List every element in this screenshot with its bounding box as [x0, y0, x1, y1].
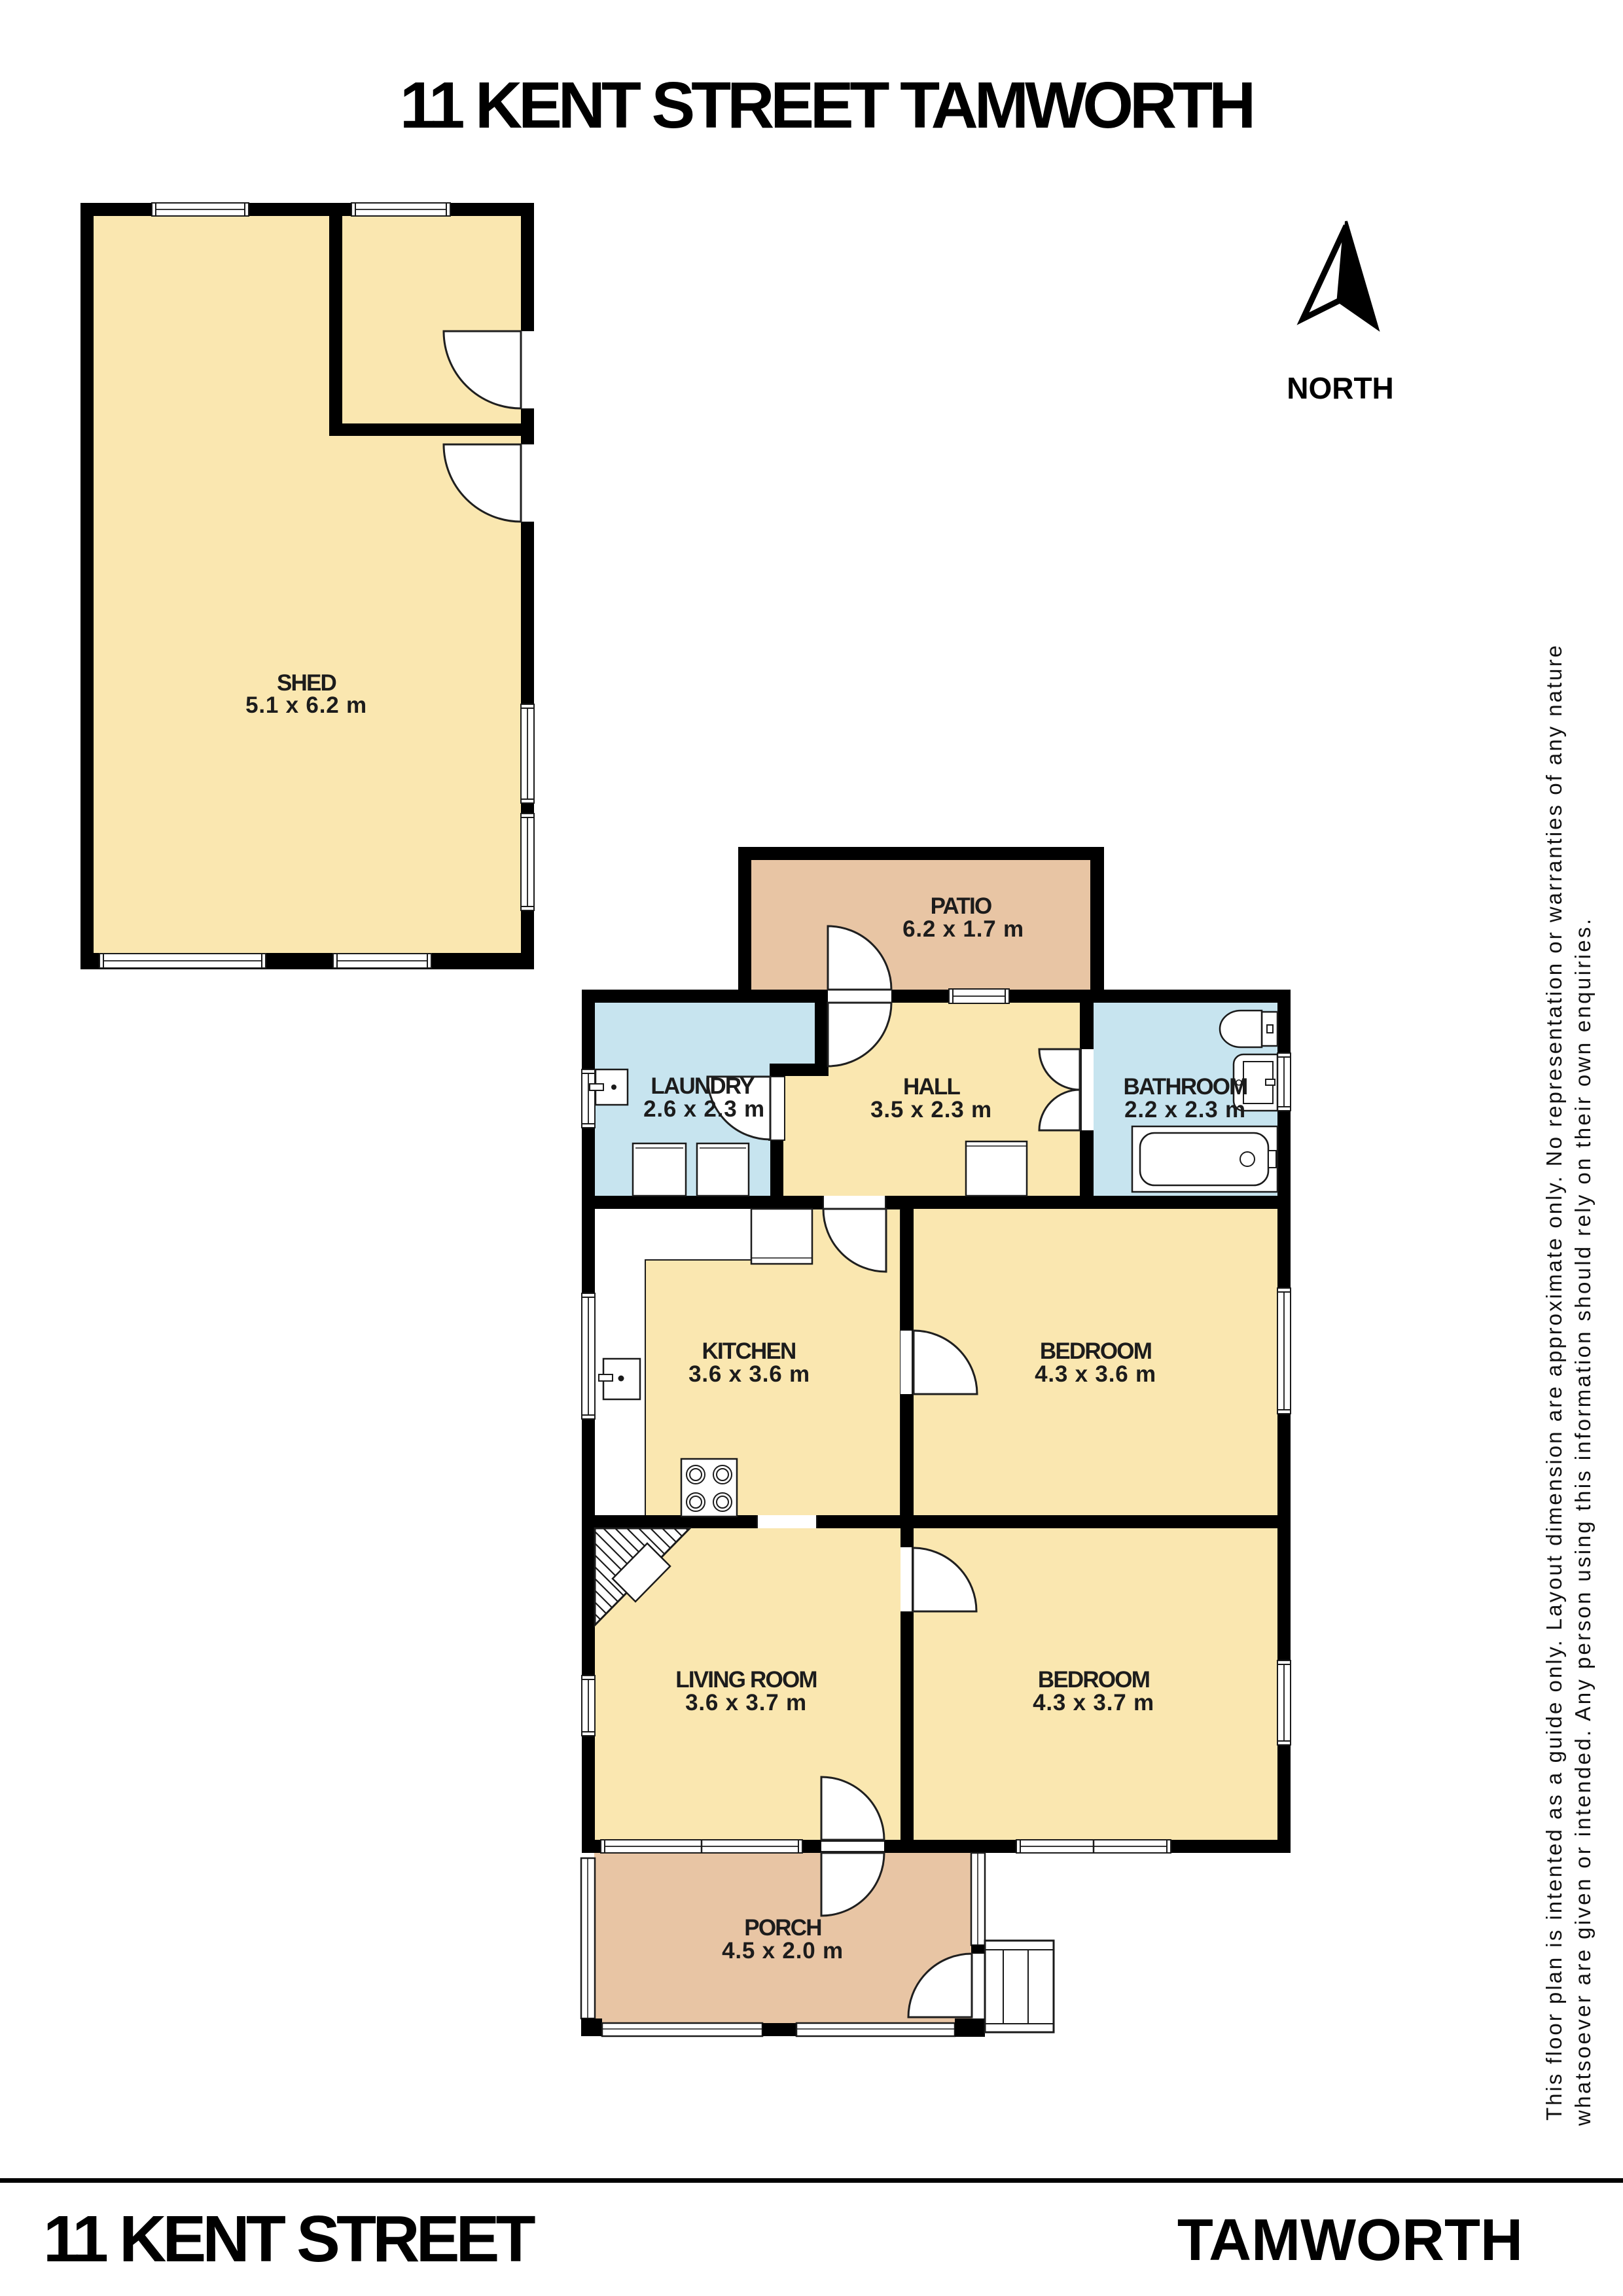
svg-text:3.5 x 2.3 m: 3.5 x 2.3 m: [870, 1097, 992, 1122]
svg-text:NORTH: NORTH: [1287, 371, 1394, 405]
svg-text:BATHROOM: BATHROOM: [1123, 1074, 1247, 1100]
svg-text:2.6 x 2.3 m: 2.6 x 2.3 m: [643, 1096, 765, 1122]
svg-text:PATIO: PATIO: [931, 893, 991, 919]
svg-text:This floor plan is intented as: This floor plan is intented as a guide o…: [1542, 643, 1566, 2121]
svg-text:11 KENT STREET TAMWORTH: 11 KENT STREET TAMWORTH: [400, 69, 1252, 142]
svg-text:2.2 x 2.3 m: 2.2 x 2.3 m: [1124, 1097, 1246, 1122]
svg-text:5.1 x 6.2 m: 5.1 x 6.2 m: [245, 692, 367, 718]
svg-text:11 KENT STREET: 11 KENT STREET: [43, 2202, 535, 2276]
svg-text:3.6 x 3.6 m: 3.6 x 3.6 m: [688, 1361, 810, 1387]
svg-text:6.2 x 1.7 m: 6.2 x 1.7 m: [902, 916, 1024, 942]
svg-text:LIVING ROOM: LIVING ROOM: [675, 1667, 816, 1693]
svg-text:PORCH: PORCH: [744, 1915, 821, 1941]
svg-text:4.3 x 3.7 m: 4.3 x 3.7 m: [1033, 1690, 1154, 1715]
svg-text:BEDROOM: BEDROOM: [1040, 1338, 1151, 1364]
svg-text:KITCHEN: KITCHEN: [702, 1338, 796, 1364]
svg-text:TAMWORTH: TAMWORTH: [1177, 2208, 1523, 2273]
svg-text:BEDROOM: BEDROOM: [1038, 1667, 1149, 1693]
svg-text:4.3 x 3.6 m: 4.3 x 3.6 m: [1035, 1361, 1156, 1387]
svg-text:whatsoever are given or intend: whatsoever are given or intended. Any pe…: [1571, 917, 1595, 2126]
svg-text:4.5 x 2.0 m: 4.5 x 2.0 m: [722, 1938, 844, 1964]
svg-text:HALL: HALL: [903, 1074, 961, 1100]
svg-text:LAUNDRY: LAUNDRY: [651, 1073, 755, 1099]
svg-text:3.6 x 3.7 m: 3.6 x 3.7 m: [685, 1690, 807, 1715]
